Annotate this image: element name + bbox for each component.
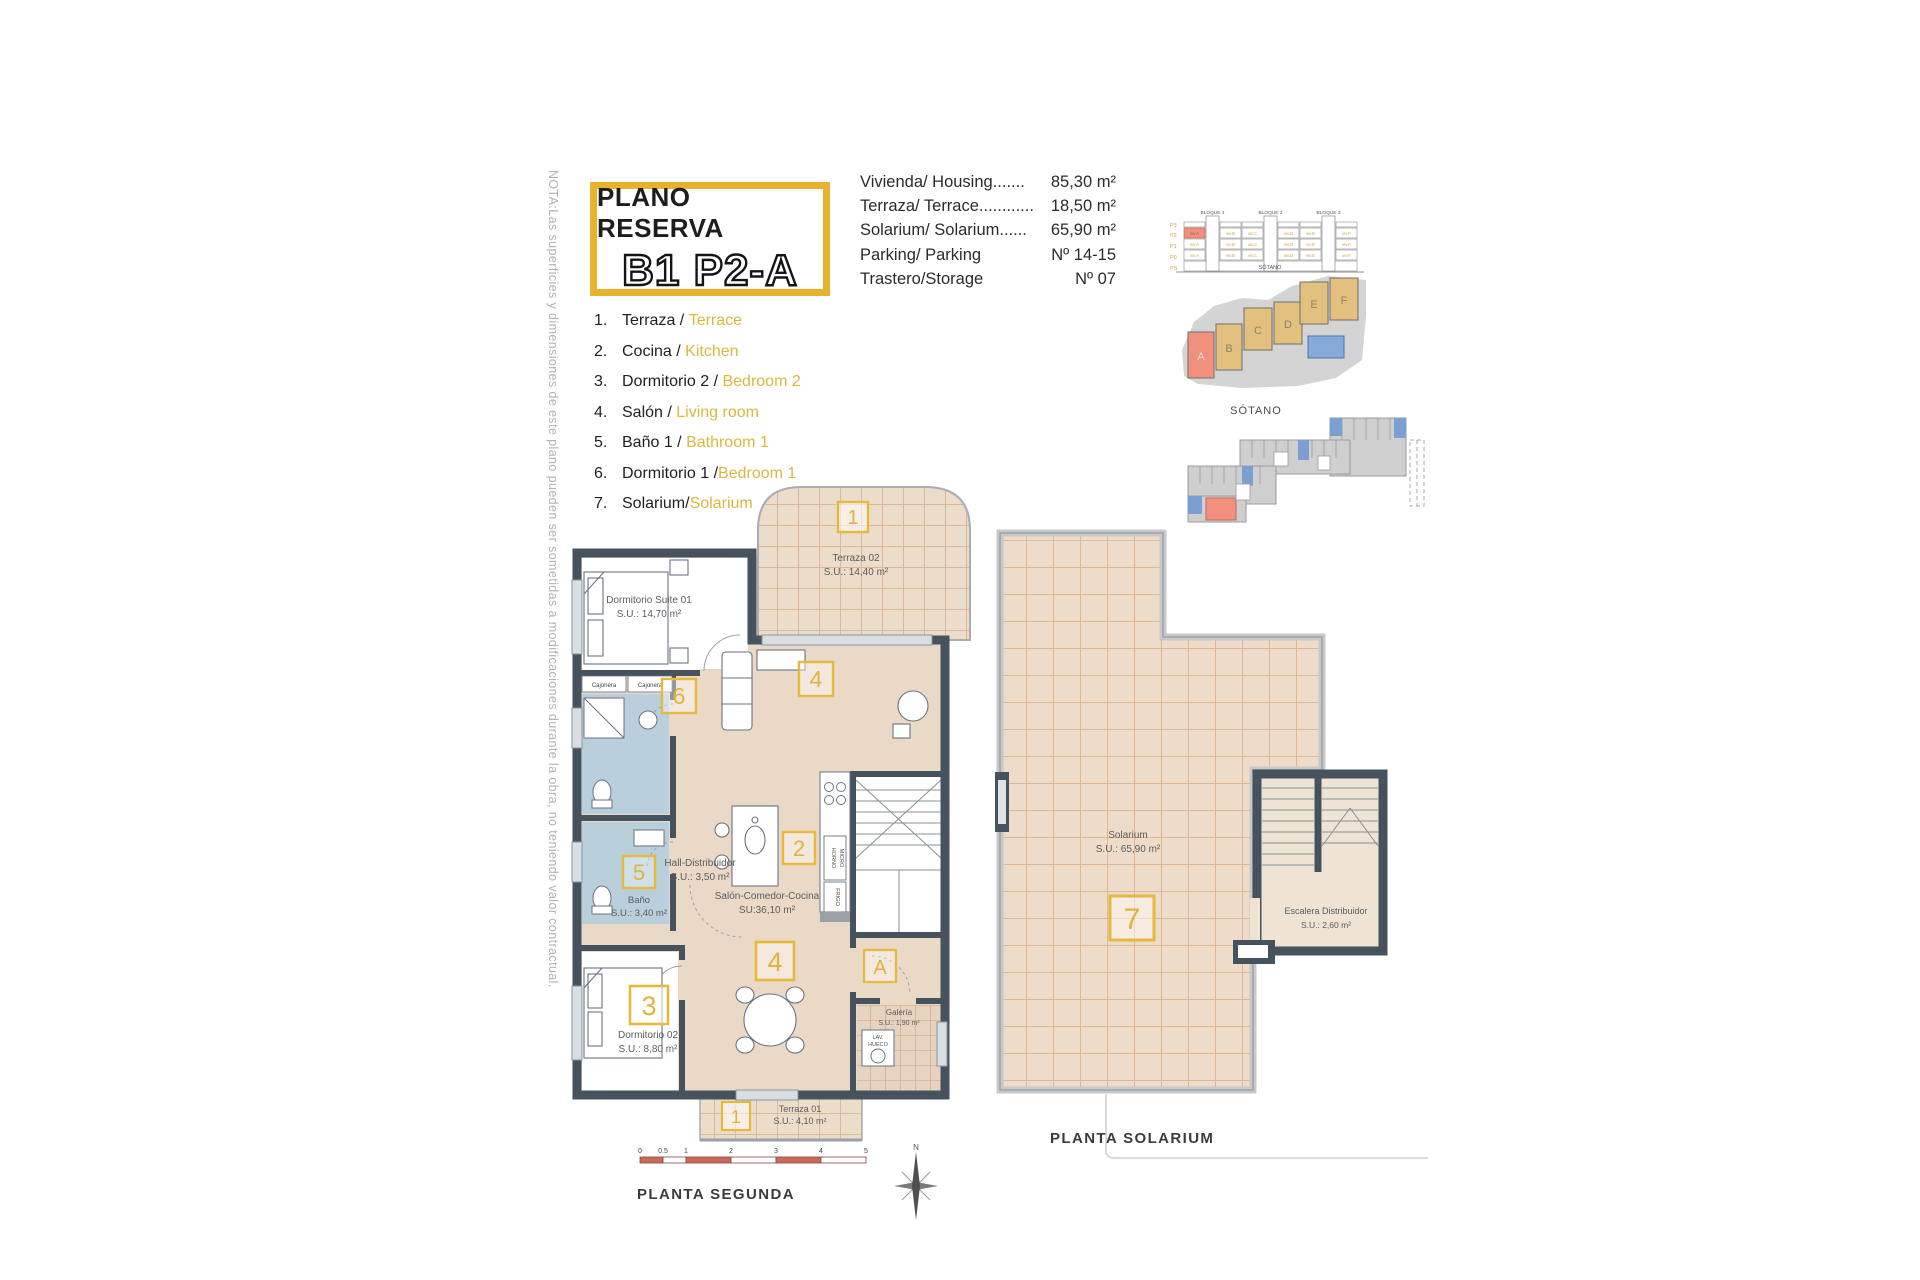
window-bath2 bbox=[572, 842, 582, 882]
washbasin-icon bbox=[639, 711, 657, 729]
svg-text:0.5: 0.5 bbox=[658, 1148, 668, 1155]
svg-text:P3: P3 bbox=[1170, 223, 1177, 229]
svg-text:P1: P1 bbox=[1170, 244, 1177, 250]
spec-housing-value: 85,30 m² bbox=[1051, 170, 1116, 194]
armchair-icon bbox=[893, 724, 910, 738]
spec-storage: Trastero/StorageNº 07 bbox=[860, 267, 1116, 291]
svg-text:viv.B: viv.B bbox=[1226, 242, 1235, 247]
spec-terrace-value: 18,50 m² bbox=[1051, 194, 1116, 218]
svg-text:viv.B: viv.B bbox=[1226, 231, 1235, 236]
horno-label: HORNO bbox=[830, 848, 836, 869]
spec-list: Vivienda/ Housing.......85,30 m² Terraza… bbox=[860, 170, 1116, 291]
spec-terrace: Terraza/ Terrace............18,50 m² bbox=[860, 194, 1116, 218]
svg-text:viv.A: viv.A bbox=[1190, 231, 1199, 236]
legend-3-sep: / bbox=[709, 373, 722, 390]
svg-text:viv.B: viv.B bbox=[1226, 253, 1235, 258]
solarium-left-wall bbox=[995, 772, 1009, 832]
svg-text:2: 2 bbox=[729, 1148, 733, 1155]
window-suite bbox=[572, 580, 582, 654]
sofa-icon bbox=[722, 652, 752, 730]
compass-icon: N bbox=[888, 1142, 944, 1220]
marker-terraza01: 1 bbox=[722, 1102, 750, 1130]
counter-end bbox=[820, 912, 850, 922]
legend-4-en: Living room bbox=[676, 404, 759, 421]
site-plan-diagram: A B C D E F bbox=[1180, 272, 1370, 402]
svg-text:viv.F: viv.F bbox=[1342, 253, 1351, 258]
window-galeria bbox=[937, 1022, 947, 1066]
legend-item-1: 1.Terraza / Terrace bbox=[594, 312, 801, 329]
hall-area: S.U.: 3,50 m² bbox=[671, 872, 731, 883]
salon-name: Salón-Comedor-Cocina bbox=[715, 891, 820, 902]
escalera-area: S.U.: 2,60 m² bbox=[1301, 920, 1351, 930]
lav-label-1: LAV. bbox=[872, 1035, 883, 1041]
frigo-label: FRIGO bbox=[834, 888, 840, 906]
svg-text:3: 3 bbox=[641, 991, 656, 1021]
svg-text:viv.E: viv.E bbox=[1306, 231, 1315, 236]
marker-salon-upper: 4 bbox=[799, 662, 833, 696]
legend-3-en: Bedroom 2 bbox=[722, 373, 800, 390]
solarium-plan: Escalera Distribuidor S.U.: 2,60 m² Sola… bbox=[985, 520, 1430, 1180]
ramp-dashed bbox=[1410, 440, 1424, 506]
svg-text:BLOQUE 3: BLOQUE 3 bbox=[1317, 210, 1341, 216]
svg-text:P0: P0 bbox=[1170, 255, 1177, 261]
terraza01-area: S.U.: 4,10 m² bbox=[773, 1116, 826, 1126]
legend-4-num: 4. bbox=[594, 404, 622, 421]
terraza02-area: S.U.: 14,40 m² bbox=[824, 567, 889, 578]
bano-area: S.U.: 3,40 m² bbox=[611, 908, 667, 919]
floor-labels: P3P2P1P0PS bbox=[1170, 223, 1178, 272]
spec-solarium-value: 65,90 m² bbox=[1051, 218, 1116, 242]
terrace-slider bbox=[762, 635, 932, 645]
marker-dorm1: 6 bbox=[662, 679, 696, 713]
svg-text:A: A bbox=[873, 957, 887, 979]
legend-5-sep: / bbox=[673, 434, 686, 451]
micro-label: MICRO bbox=[838, 849, 844, 868]
legend-item-4: 4.Salón / Living room bbox=[594, 404, 801, 421]
legend-2-en: Kitchen bbox=[685, 343, 738, 360]
svg-text:BLOQUE 2: BLOQUE 2 bbox=[1259, 210, 1283, 216]
spec-terrace-label: Terraza/ Terrace............ bbox=[860, 194, 1034, 218]
spec-housing: Vivienda/ Housing.......85,30 m² bbox=[860, 170, 1116, 194]
terraza02-name: Terraza 02 bbox=[832, 553, 880, 564]
spec-parking-value: Nº 14-15 bbox=[1051, 243, 1116, 267]
marker-dorm2: 3 bbox=[630, 986, 668, 1024]
title-main: B1 P2-A bbox=[622, 246, 798, 296]
terraza01-door bbox=[736, 1090, 798, 1100]
svg-text:viv.C: viv.C bbox=[1248, 242, 1257, 247]
svg-text:1: 1 bbox=[847, 507, 858, 529]
legend-item-3: 3.Dormitorio 2 / Bedroom 2 bbox=[594, 373, 801, 390]
block-headers: BLOQUE 1BLOQUE 2BLOQUE 3 bbox=[1201, 210, 1341, 216]
scale-bar: 00.512345 bbox=[632, 1144, 878, 1174]
spec-storage-label: Trastero/Storage bbox=[860, 267, 983, 291]
svg-text:PS: PS bbox=[1170, 266, 1178, 272]
legend-4-es: Salón bbox=[622, 404, 663, 421]
svg-text:4: 4 bbox=[810, 666, 823, 692]
window-dorm02 bbox=[572, 986, 582, 1060]
svg-text:1: 1 bbox=[731, 1107, 741, 1127]
suite-area: S.U.: 14,70 m² bbox=[617, 609, 682, 620]
highlighted-parking bbox=[1206, 498, 1236, 520]
svg-text:viv.D: viv.D bbox=[1284, 231, 1293, 236]
marker-salon-lower: 4 bbox=[756, 942, 794, 980]
spec-storage-value: Nº 07 bbox=[1075, 267, 1116, 291]
svg-text:viv.F: viv.F bbox=[1342, 242, 1351, 247]
svg-text:1: 1 bbox=[684, 1148, 688, 1155]
marker-bano1: 5 bbox=[623, 856, 655, 888]
compass-n-label: N bbox=[913, 1143, 919, 1152]
title-box: PLANO RESERVA B1 P2-A bbox=[590, 182, 830, 296]
hall-name: Hall-Distribuidor bbox=[664, 858, 736, 869]
legend-item-5: 5.Baño 1 / Bathroom 1 bbox=[594, 434, 801, 451]
solarium-area: S.U.: 65,90 m² bbox=[1096, 844, 1161, 855]
washer-icon: LAV. HUECO bbox=[862, 1030, 894, 1066]
sotano-label: SÓTANO bbox=[1230, 404, 1282, 417]
svg-text:viv.D: viv.D bbox=[1284, 253, 1293, 258]
svg-text:viv.C: viv.C bbox=[1248, 253, 1257, 258]
sotano-band-label: SÓTANO bbox=[1259, 264, 1283, 271]
svg-text:BLOQUE 1: BLOQUE 1 bbox=[1201, 210, 1225, 216]
svg-text:viv.A: viv.A bbox=[1190, 253, 1199, 258]
legend-1-es: Terraza bbox=[622, 312, 675, 329]
svg-text:B: B bbox=[1225, 343, 1232, 355]
legend-item-2: 2.Cocina / Kitchen bbox=[594, 343, 801, 360]
escalera-name: Escalera Distribuidor bbox=[1284, 906, 1367, 916]
svg-text:4: 4 bbox=[767, 947, 782, 977]
vertical-note: NOTA:Las superficies y dimensiones de es… bbox=[546, 170, 560, 1075]
svg-text:5: 5 bbox=[864, 1148, 868, 1155]
floor-plan: Cajonera Cajonera bbox=[560, 470, 980, 1170]
salon-area: SU:36,10 m² bbox=[739, 905, 796, 916]
marker-entrance-a: A bbox=[864, 950, 896, 982]
legend-1-sep: / bbox=[675, 312, 688, 329]
svg-text:5: 5 bbox=[633, 860, 645, 885]
svg-text:A: A bbox=[1197, 351, 1205, 363]
side-table-icon bbox=[898, 691, 928, 721]
marker-solarium: 7 bbox=[1110, 896, 1154, 940]
legend-2-es: Cocina bbox=[622, 343, 672, 360]
bano-name: Baño bbox=[628, 895, 650, 906]
svg-text:viv.C: viv.C bbox=[1248, 231, 1257, 236]
dorm02-name: Dormitorio 02 bbox=[618, 1030, 678, 1041]
spec-parking: Parking/ ParkingNº 14-15 bbox=[860, 243, 1116, 267]
spec-housing-label: Vivienda/ Housing....... bbox=[860, 170, 1025, 194]
stair-enclosure: Escalera Distribuidor S.U.: 2,60 m² bbox=[1233, 774, 1383, 964]
legend-3-es: Dormitorio 2 bbox=[622, 373, 709, 390]
spec-parking-label: Parking/ Parking bbox=[860, 243, 981, 267]
title-top: PLANO RESERVA bbox=[597, 182, 823, 244]
legend-5-num: 5. bbox=[594, 434, 622, 451]
legend-2-num: 2. bbox=[594, 343, 622, 360]
leader-line bbox=[1106, 1094, 1428, 1158]
stool-icon bbox=[715, 823, 729, 837]
scale-segments bbox=[640, 1157, 866, 1163]
suite-name: Dormitorio Suite 01 bbox=[606, 595, 692, 606]
svg-text:P2: P2 bbox=[1170, 233, 1177, 239]
svg-text:7: 7 bbox=[1124, 903, 1141, 936]
svg-text:viv.A: viv.A bbox=[1190, 242, 1199, 247]
svg-text:3: 3 bbox=[774, 1148, 778, 1155]
window-bath1 bbox=[572, 708, 582, 748]
legend-2-sep: / bbox=[672, 343, 685, 360]
solarium-name: Solarium bbox=[1108, 830, 1147, 841]
svg-text:F: F bbox=[1341, 295, 1348, 307]
legend-5-en: Bathroom 1 bbox=[686, 434, 769, 451]
legend-4-sep: / bbox=[663, 404, 676, 421]
spec-solarium-label: Solarium/ Solarium...... bbox=[860, 218, 1027, 242]
plan-sheet: NOTA:Las superficies y dimensiones de es… bbox=[0, 0, 1920, 1280]
pool bbox=[1308, 336, 1344, 358]
caption-planta-solarium: PLANTA SOLARIUM bbox=[1050, 1130, 1214, 1147]
legend-3-num: 3. bbox=[594, 373, 622, 390]
legend-1-num: 1. bbox=[594, 312, 622, 329]
svg-text:viv.E: viv.E bbox=[1306, 253, 1315, 258]
scale-ticks: 00.512345 bbox=[638, 1148, 868, 1155]
legend-1-en: Terrace bbox=[689, 312, 742, 329]
svg-text:6: 6 bbox=[673, 683, 686, 709]
stair-door-opening bbox=[1250, 898, 1260, 940]
svg-text:D: D bbox=[1284, 319, 1292, 331]
svg-text:0: 0 bbox=[638, 1148, 642, 1155]
kitchen-counter-icon: HORNO MICRO FRIGO bbox=[820, 772, 850, 922]
caption-planta-segunda: PLANTA SEGUNDA bbox=[637, 1186, 795, 1203]
svg-text:2: 2 bbox=[793, 836, 805, 861]
cajonera-label-1: Cajonera bbox=[592, 683, 617, 689]
svg-text:E: E bbox=[1310, 299, 1317, 311]
dorm02-area: S.U.: 8,80 m² bbox=[619, 1044, 679, 1055]
terraza01-name: Terraza 01 bbox=[779, 1104, 822, 1114]
svg-text:viv.E: viv.E bbox=[1306, 242, 1315, 247]
sideboard-icon bbox=[757, 650, 805, 670]
cajonera-label-2: Cajonera bbox=[638, 683, 663, 689]
svg-text:viv.D: viv.D bbox=[1284, 242, 1293, 247]
spec-solarium: Solarium/ Solarium......65,90 m² bbox=[860, 218, 1116, 242]
svg-text:4: 4 bbox=[819, 1148, 823, 1155]
lav-label-2: HUECO bbox=[868, 1042, 889, 1048]
svg-text:viv.F: viv.F bbox=[1342, 231, 1351, 236]
dining-table-icon bbox=[744, 994, 796, 1046]
legend-5-es: Baño 1 bbox=[622, 434, 673, 451]
galeria-name: Galería bbox=[886, 1008, 913, 1017]
svg-text:C: C bbox=[1254, 325, 1262, 337]
marker-cocina: 2 bbox=[783, 832, 815, 864]
washbasin2-icon bbox=[634, 830, 664, 846]
marker-terraza02: 1 bbox=[838, 502, 868, 532]
galeria-area: S.U.: 1,90 m² bbox=[878, 1020, 920, 1027]
